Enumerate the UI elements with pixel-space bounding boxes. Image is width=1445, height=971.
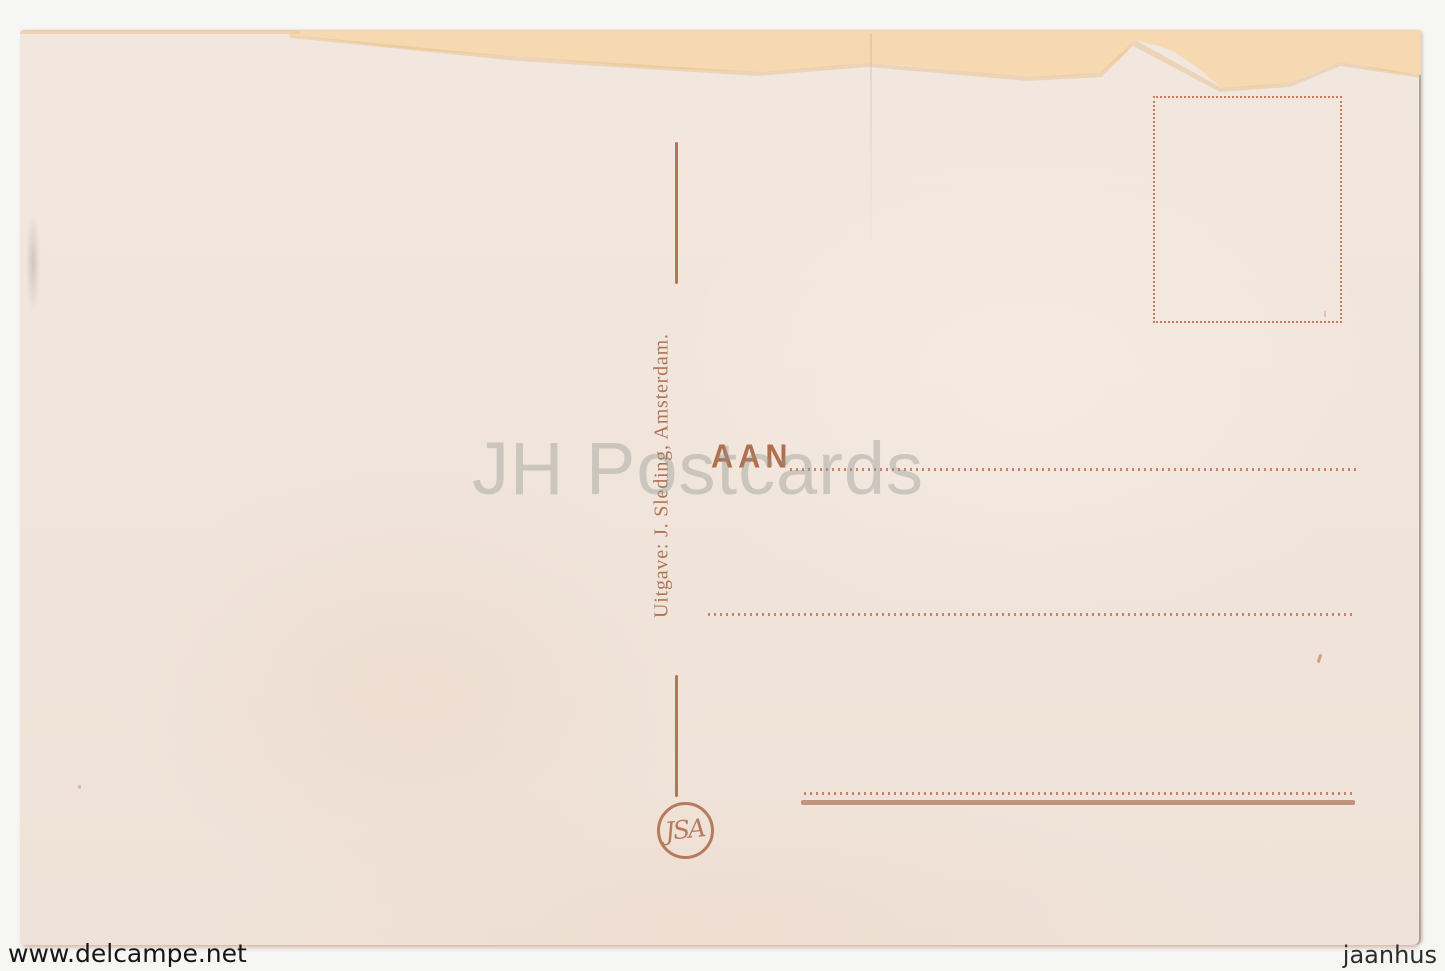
postcard-back: Uitgave: J. Sleding, Amsterdam. JSA AAN xyxy=(20,30,1421,945)
bottom-rule xyxy=(801,800,1355,805)
edge-smudge xyxy=(24,198,42,328)
top-edge-tint xyxy=(20,30,300,34)
publisher-imprint: Uitgave: J. Sleding, Amsterdam. xyxy=(640,280,684,672)
paper-speck xyxy=(78,785,81,789)
address-line-3 xyxy=(804,792,1355,795)
seller-credit: jaanhus xyxy=(1343,941,1437,969)
delcampe-credit: www.delcampe.net xyxy=(8,939,247,968)
logo-monogram: JSA xyxy=(663,813,705,846)
paper-speck xyxy=(1324,311,1326,317)
address-line-1 xyxy=(790,468,1356,471)
paper-speck xyxy=(1317,654,1323,663)
paper-crease xyxy=(870,34,872,244)
address-line-2 xyxy=(708,613,1356,616)
address-to-label: AAN xyxy=(711,439,793,476)
divider-line-bottom xyxy=(675,675,678,797)
publisher-logo: JSA xyxy=(657,802,714,859)
stamp-box xyxy=(1153,96,1342,323)
divider-line-top xyxy=(675,142,678,284)
scan-background: Uitgave: J. Sleding, Amsterdam. JSA AAN … xyxy=(0,0,1445,971)
